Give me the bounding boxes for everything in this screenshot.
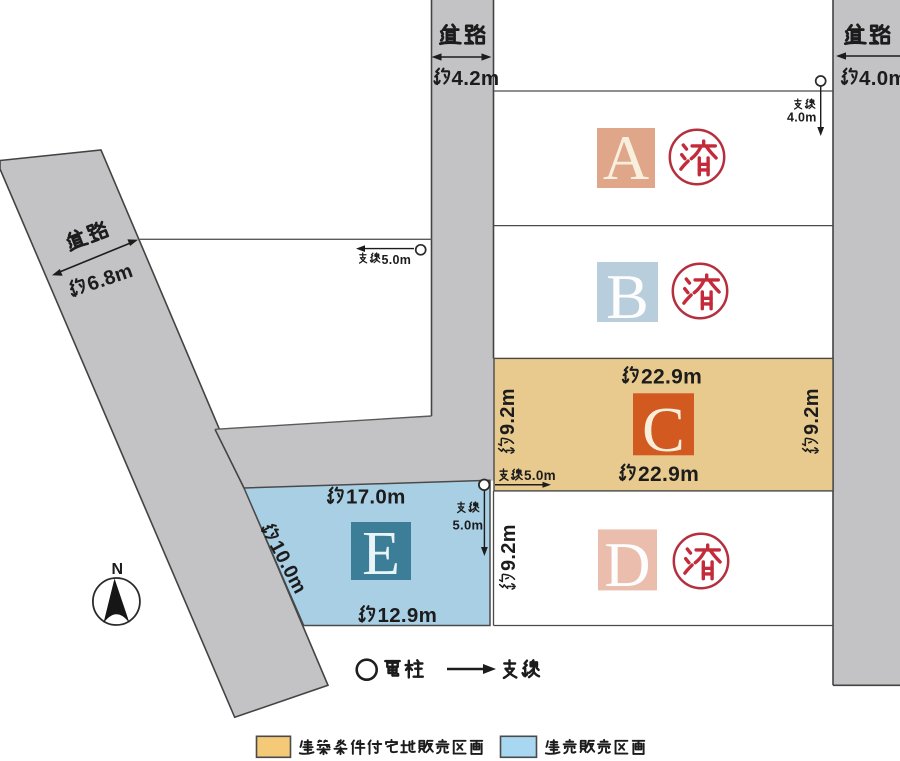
svg-text:D: D [604, 529, 650, 600]
svg-text:B: B [606, 261, 649, 332]
svg-text:5.0m: 5.0m [453, 518, 484, 533]
svg-text:E: E [362, 520, 400, 588]
svg-text:9.2m: 9.2m [497, 388, 519, 435]
svg-text:22.9m: 22.9m [641, 366, 702, 389]
svg-text:22.9m: 22.9m [638, 463, 699, 486]
svg-text:12.9m: 12.9m [378, 604, 438, 627]
svg-text:9.2m: 9.2m [801, 388, 823, 435]
svg-text:17.0m: 17.0m [346, 486, 406, 509]
svg-text:5.0m: 5.0m [524, 468, 556, 483]
svg-text:C: C [642, 394, 685, 465]
svg-text:4.0m: 4.0m [787, 111, 817, 125]
svg-text:4.2m: 4.2m [452, 67, 500, 90]
svg-text:A: A [603, 122, 649, 193]
svg-text:N: N [112, 561, 124, 578]
svg-text:9.2m: 9.2m [498, 524, 520, 571]
svg-text:5.0m: 5.0m [382, 253, 412, 267]
svg-text:4.0m: 4.0m [859, 67, 900, 90]
